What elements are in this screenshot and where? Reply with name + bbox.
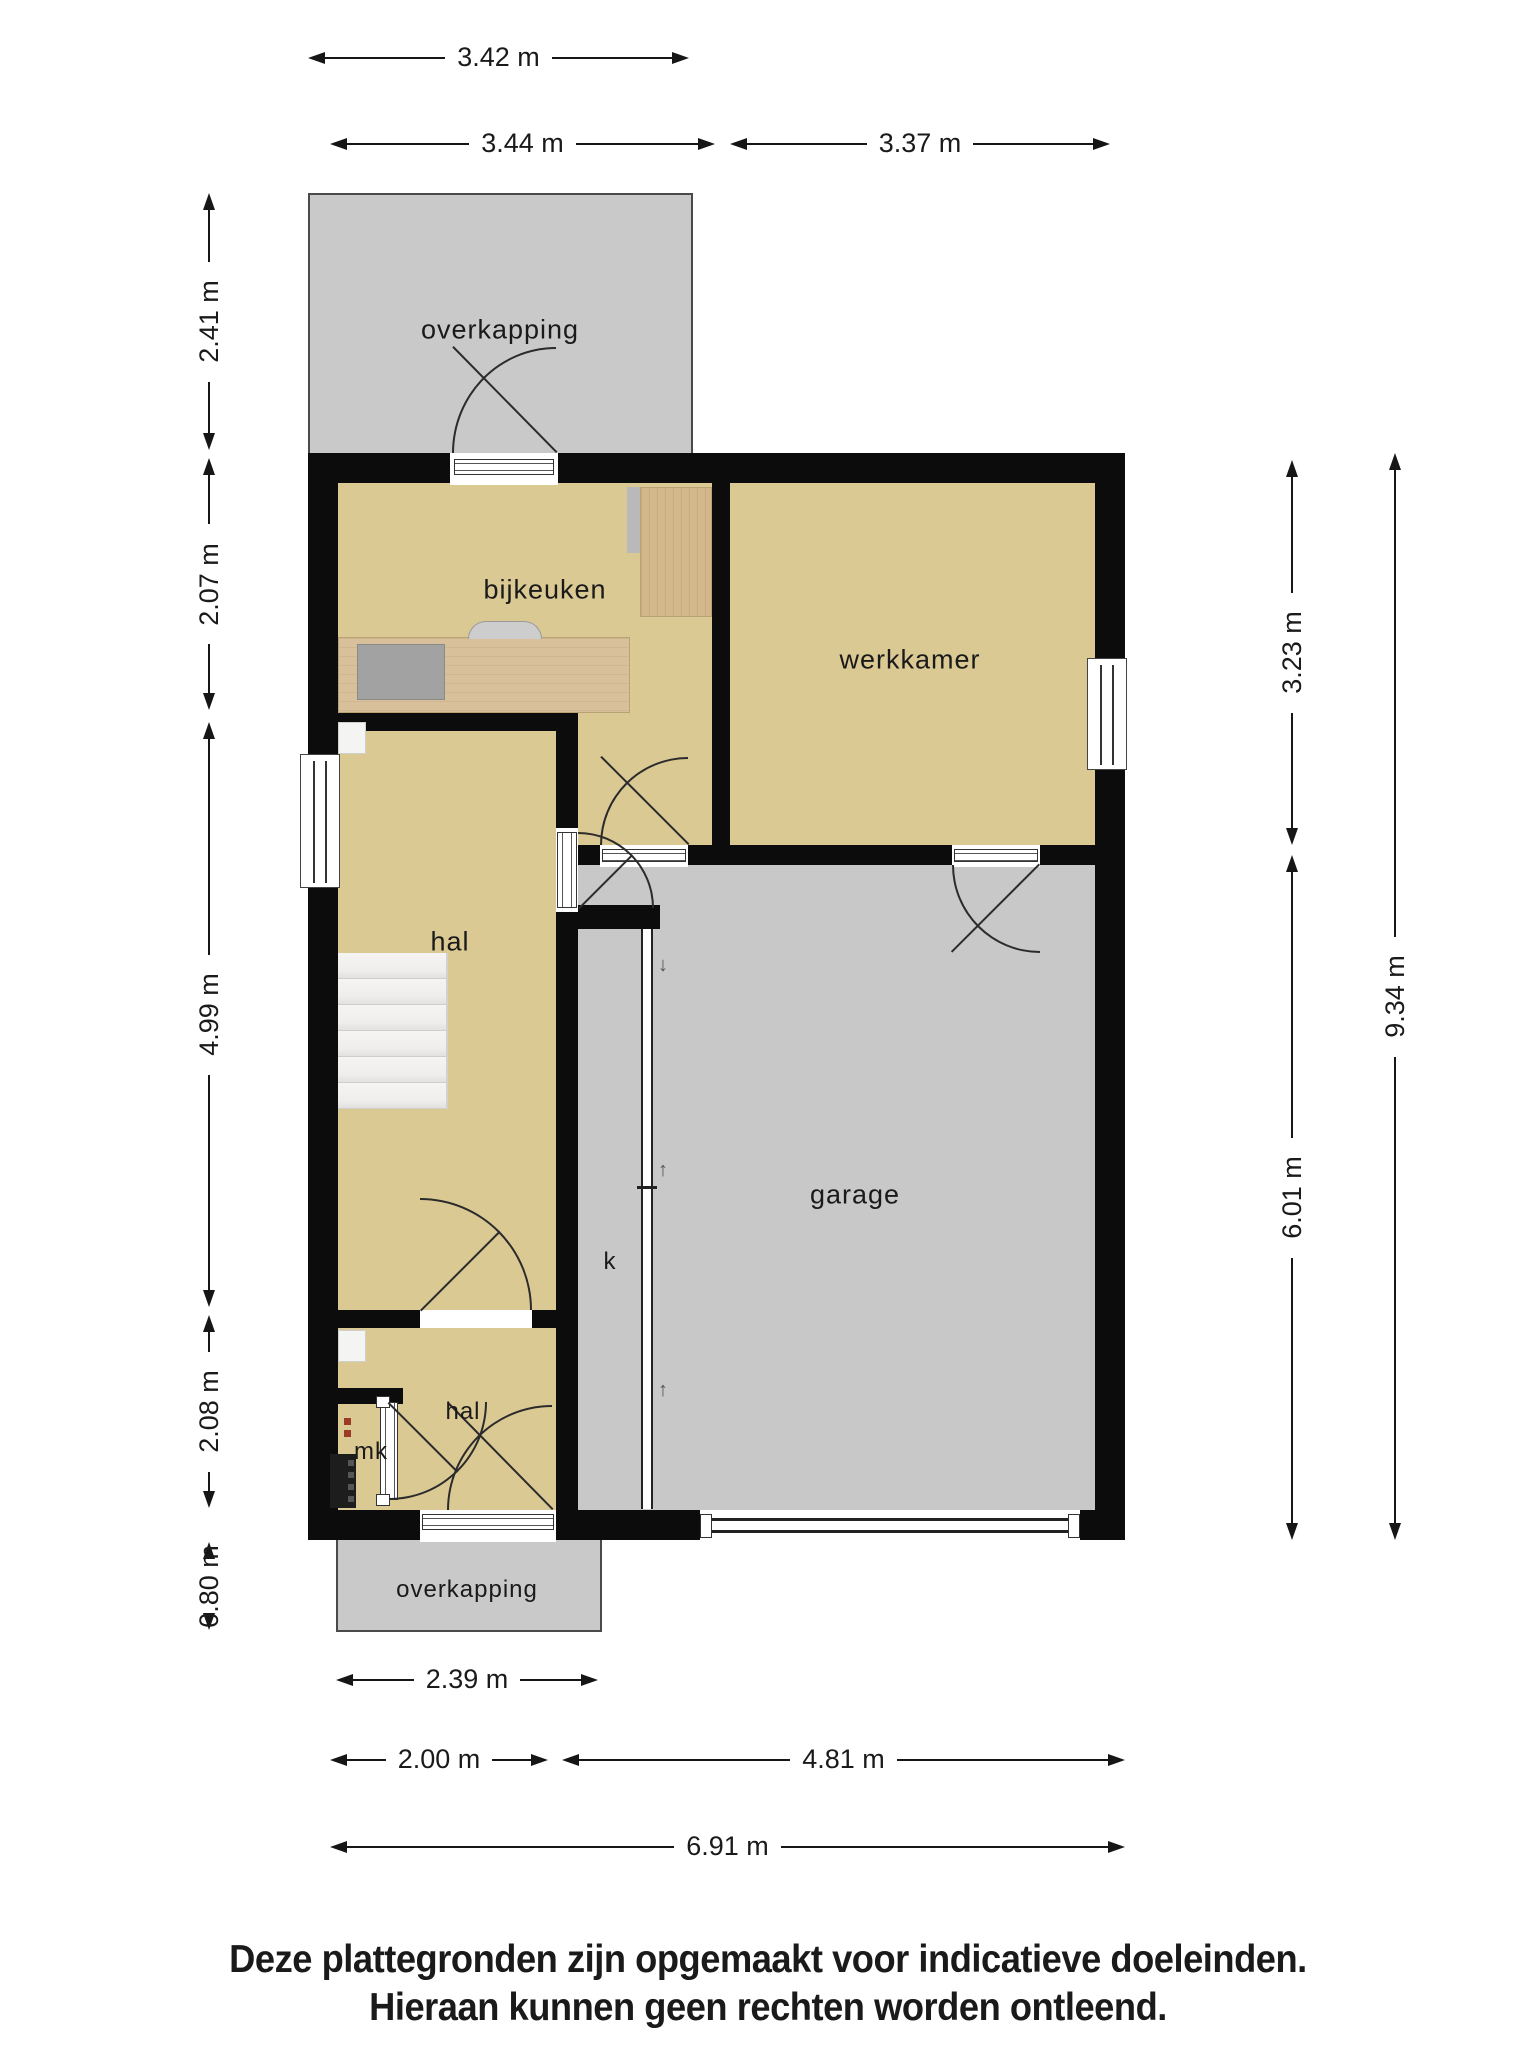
dim-label: 3.42 m — [445, 42, 552, 73]
dim-line — [520, 1679, 581, 1681]
room-label-overkapping-top: overkapping — [421, 315, 579, 346]
stair-tread — [338, 1005, 446, 1031]
stair-tread — [338, 1083, 446, 1109]
room-label-k: k — [604, 1248, 617, 1276]
window-werkkamer-right — [1087, 658, 1127, 770]
room-label-werkkamer: werkkamer — [839, 645, 980, 676]
dim-line — [208, 1075, 210, 1291]
dim-label: 6.01 m — [1277, 1156, 1308, 1239]
dim-line — [347, 143, 469, 145]
dimension-left-5: 0.80 m — [168, 1542, 251, 1630]
dimension-right-3: 9.34 m — [1354, 453, 1437, 1540]
door-opening-hal-hal — [420, 1310, 532, 1328]
dimension-left-3: 4.99 m — [168, 722, 251, 1307]
door-leaf-overkapping — [454, 459, 554, 475]
arrow-left-icon — [330, 138, 347, 150]
room-label-mk: mk — [354, 1438, 388, 1466]
dim-line — [973, 143, 1093, 145]
tall-cabinet — [640, 487, 712, 617]
door-handle-mk-bottom — [376, 1494, 390, 1506]
dimension-bottom-2: 2.00 m — [330, 1744, 548, 1775]
dimension-right-2: 6.01 m — [1251, 855, 1334, 1540]
room-label-hal-lower: hal — [445, 1398, 480, 1426]
arrow-down-icon — [203, 433, 215, 450]
arrow-up-icon — [1286, 855, 1298, 872]
door-leaf-hal-garage — [557, 832, 577, 908]
dimension-bottom-4: 6.91 m — [330, 1831, 1125, 1862]
window-glass — [313, 761, 327, 883]
dim-line — [1291, 477, 1293, 593]
dimension-bottom-3: 4.81 m — [562, 1744, 1125, 1775]
rail-arrow-icon: ↑ — [658, 1380, 668, 1400]
rail-arrow-icon: ↓ — [658, 955, 668, 975]
dim-line — [1394, 470, 1396, 937]
meter-cabinet — [330, 1454, 356, 1508]
dim-label: 4.81 m — [790, 1744, 897, 1775]
sink-unit — [357, 644, 445, 700]
garage-door — [706, 1518, 1074, 1533]
room-label-overkapping-bottom: overkapping — [396, 1576, 538, 1604]
arrow-left-icon — [330, 1841, 347, 1853]
dim-line — [747, 143, 867, 145]
meter-dot — [344, 1418, 351, 1425]
arrow-up-icon — [1286, 460, 1298, 477]
room-label-bijkeuken: bijkeuken — [483, 575, 606, 606]
arrow-right-icon — [1108, 1754, 1125, 1766]
staircase — [338, 953, 448, 1109]
arrow-down-icon — [1286, 828, 1298, 845]
dim-line — [576, 143, 698, 145]
arrow-left-icon — [330, 1754, 347, 1766]
arrow-up-icon — [203, 458, 215, 475]
cabinet-side-panel — [627, 487, 640, 553]
dim-label: 2.00 m — [386, 1744, 493, 1775]
dim-line — [579, 1759, 790, 1761]
dimension-left-2: 2.07 m — [168, 458, 251, 710]
sliding-rail-k — [641, 929, 653, 1509]
door-leaf-entrance — [422, 1514, 554, 1530]
dim-line — [353, 1679, 414, 1681]
dim-label: 4.99 m — [194, 973, 225, 1056]
dim-label: 6.91 m — [674, 1831, 781, 1862]
arrow-left-icon — [730, 138, 747, 150]
dim-label: 3.37 m — [867, 128, 974, 159]
arrow-right-icon — [1108, 1841, 1125, 1853]
dim-line — [552, 57, 672, 59]
dim-line — [208, 475, 210, 524]
floor-plan: overkapping ↓ ↑ ↑ — [0, 0, 1536, 2048]
dimension-right-1: 3.23 m — [1251, 460, 1334, 845]
dim-label: 9.34 m — [1380, 955, 1411, 1038]
niche-hal-upper — [338, 722, 366, 754]
dimension-left-1: 2.41 m — [168, 193, 251, 450]
meter-dot — [344, 1430, 351, 1437]
dim-label: 3.23 m — [1277, 611, 1308, 694]
arrow-down-icon — [203, 1491, 215, 1508]
dim-line — [781, 1846, 1108, 1848]
dim-line — [208, 382, 210, 434]
rail-tick — [637, 1186, 657, 1189]
arrow-up-icon — [203, 193, 215, 210]
dim-line — [347, 1759, 386, 1761]
arrow-right-icon — [1093, 138, 1110, 150]
disclaimer-line-2: Hieraan kunnen geen rechten worden ontle… — [54, 1986, 1482, 2030]
dim-label: 2.07 m — [194, 543, 225, 626]
dimension-top-3: 3.37 m — [730, 128, 1110, 159]
dim-label: 2.08 m — [194, 1370, 225, 1453]
stair-tread — [338, 1057, 446, 1083]
dim-line — [1291, 872, 1293, 1138]
dim-line — [208, 1332, 210, 1352]
room-label-hal-upper: hal — [430, 927, 469, 958]
stair-tread — [338, 979, 446, 1005]
dim-label: 3.44 m — [469, 128, 576, 159]
garage-door-jamb-left — [700, 1514, 712, 1538]
dimension-bottom-1: 2.39 m — [336, 1664, 598, 1695]
room-label-garage: garage — [810, 1180, 900, 1211]
window-glass — [1100, 665, 1114, 765]
disclaimer-line-1: Deze plattegronden zijn opgemaakt voor i… — [54, 1938, 1482, 1982]
niche-hal-lower — [338, 1330, 366, 1362]
dimension-top-1: 3.42 m — [308, 42, 689, 73]
counter-backsplash — [468, 621, 542, 639]
stair-tread — [338, 1031, 446, 1057]
dim-line — [208, 1472, 210, 1492]
dimension-left-4: 2.08 m — [168, 1315, 251, 1508]
arrow-right-icon — [581, 1674, 598, 1686]
arrow-up-icon — [203, 722, 215, 739]
door-leaf-werkkamer-garage — [954, 849, 1038, 862]
dim-line — [208, 739, 210, 955]
dim-line — [1291, 1258, 1293, 1524]
dim-line — [208, 644, 210, 693]
meter-cabinet-dot — [348, 1472, 354, 1478]
arrow-left-icon — [336, 1674, 353, 1686]
window-hal-left — [300, 754, 340, 888]
meter-cabinet-dot — [348, 1496, 354, 1502]
arrow-up-icon — [1389, 453, 1401, 470]
arrow-up-icon — [203, 1315, 215, 1332]
arrow-left-icon — [562, 1754, 579, 1766]
arrow-right-icon — [698, 138, 715, 150]
dim-line — [897, 1759, 1108, 1761]
arrow-down-icon — [1286, 1523, 1298, 1540]
dim-line — [347, 1846, 674, 1848]
dimension-top-2: 3.44 m — [330, 128, 715, 159]
dim-line — [492, 1759, 531, 1761]
rail-arrow-icon: ↑ — [658, 1160, 668, 1180]
arrow-right-icon — [672, 52, 689, 64]
arrow-right-icon — [531, 1754, 548, 1766]
garage-door-jamb-right — [1068, 1514, 1080, 1538]
arrow-down-icon — [203, 693, 215, 710]
meter-cabinet-dot — [348, 1484, 354, 1490]
dim-line — [208, 210, 210, 262]
dim-line — [1291, 713, 1293, 829]
dim-line — [325, 57, 445, 59]
dim-label: 2.41 m — [194, 280, 225, 363]
arrow-down-icon — [203, 1290, 215, 1307]
arrow-left-icon — [308, 52, 325, 64]
dim-label: 0.80 m — [194, 1545, 225, 1628]
dim-line — [1394, 1057, 1396, 1524]
dim-label: 2.39 m — [414, 1664, 521, 1695]
arrow-down-icon — [1389, 1523, 1401, 1540]
